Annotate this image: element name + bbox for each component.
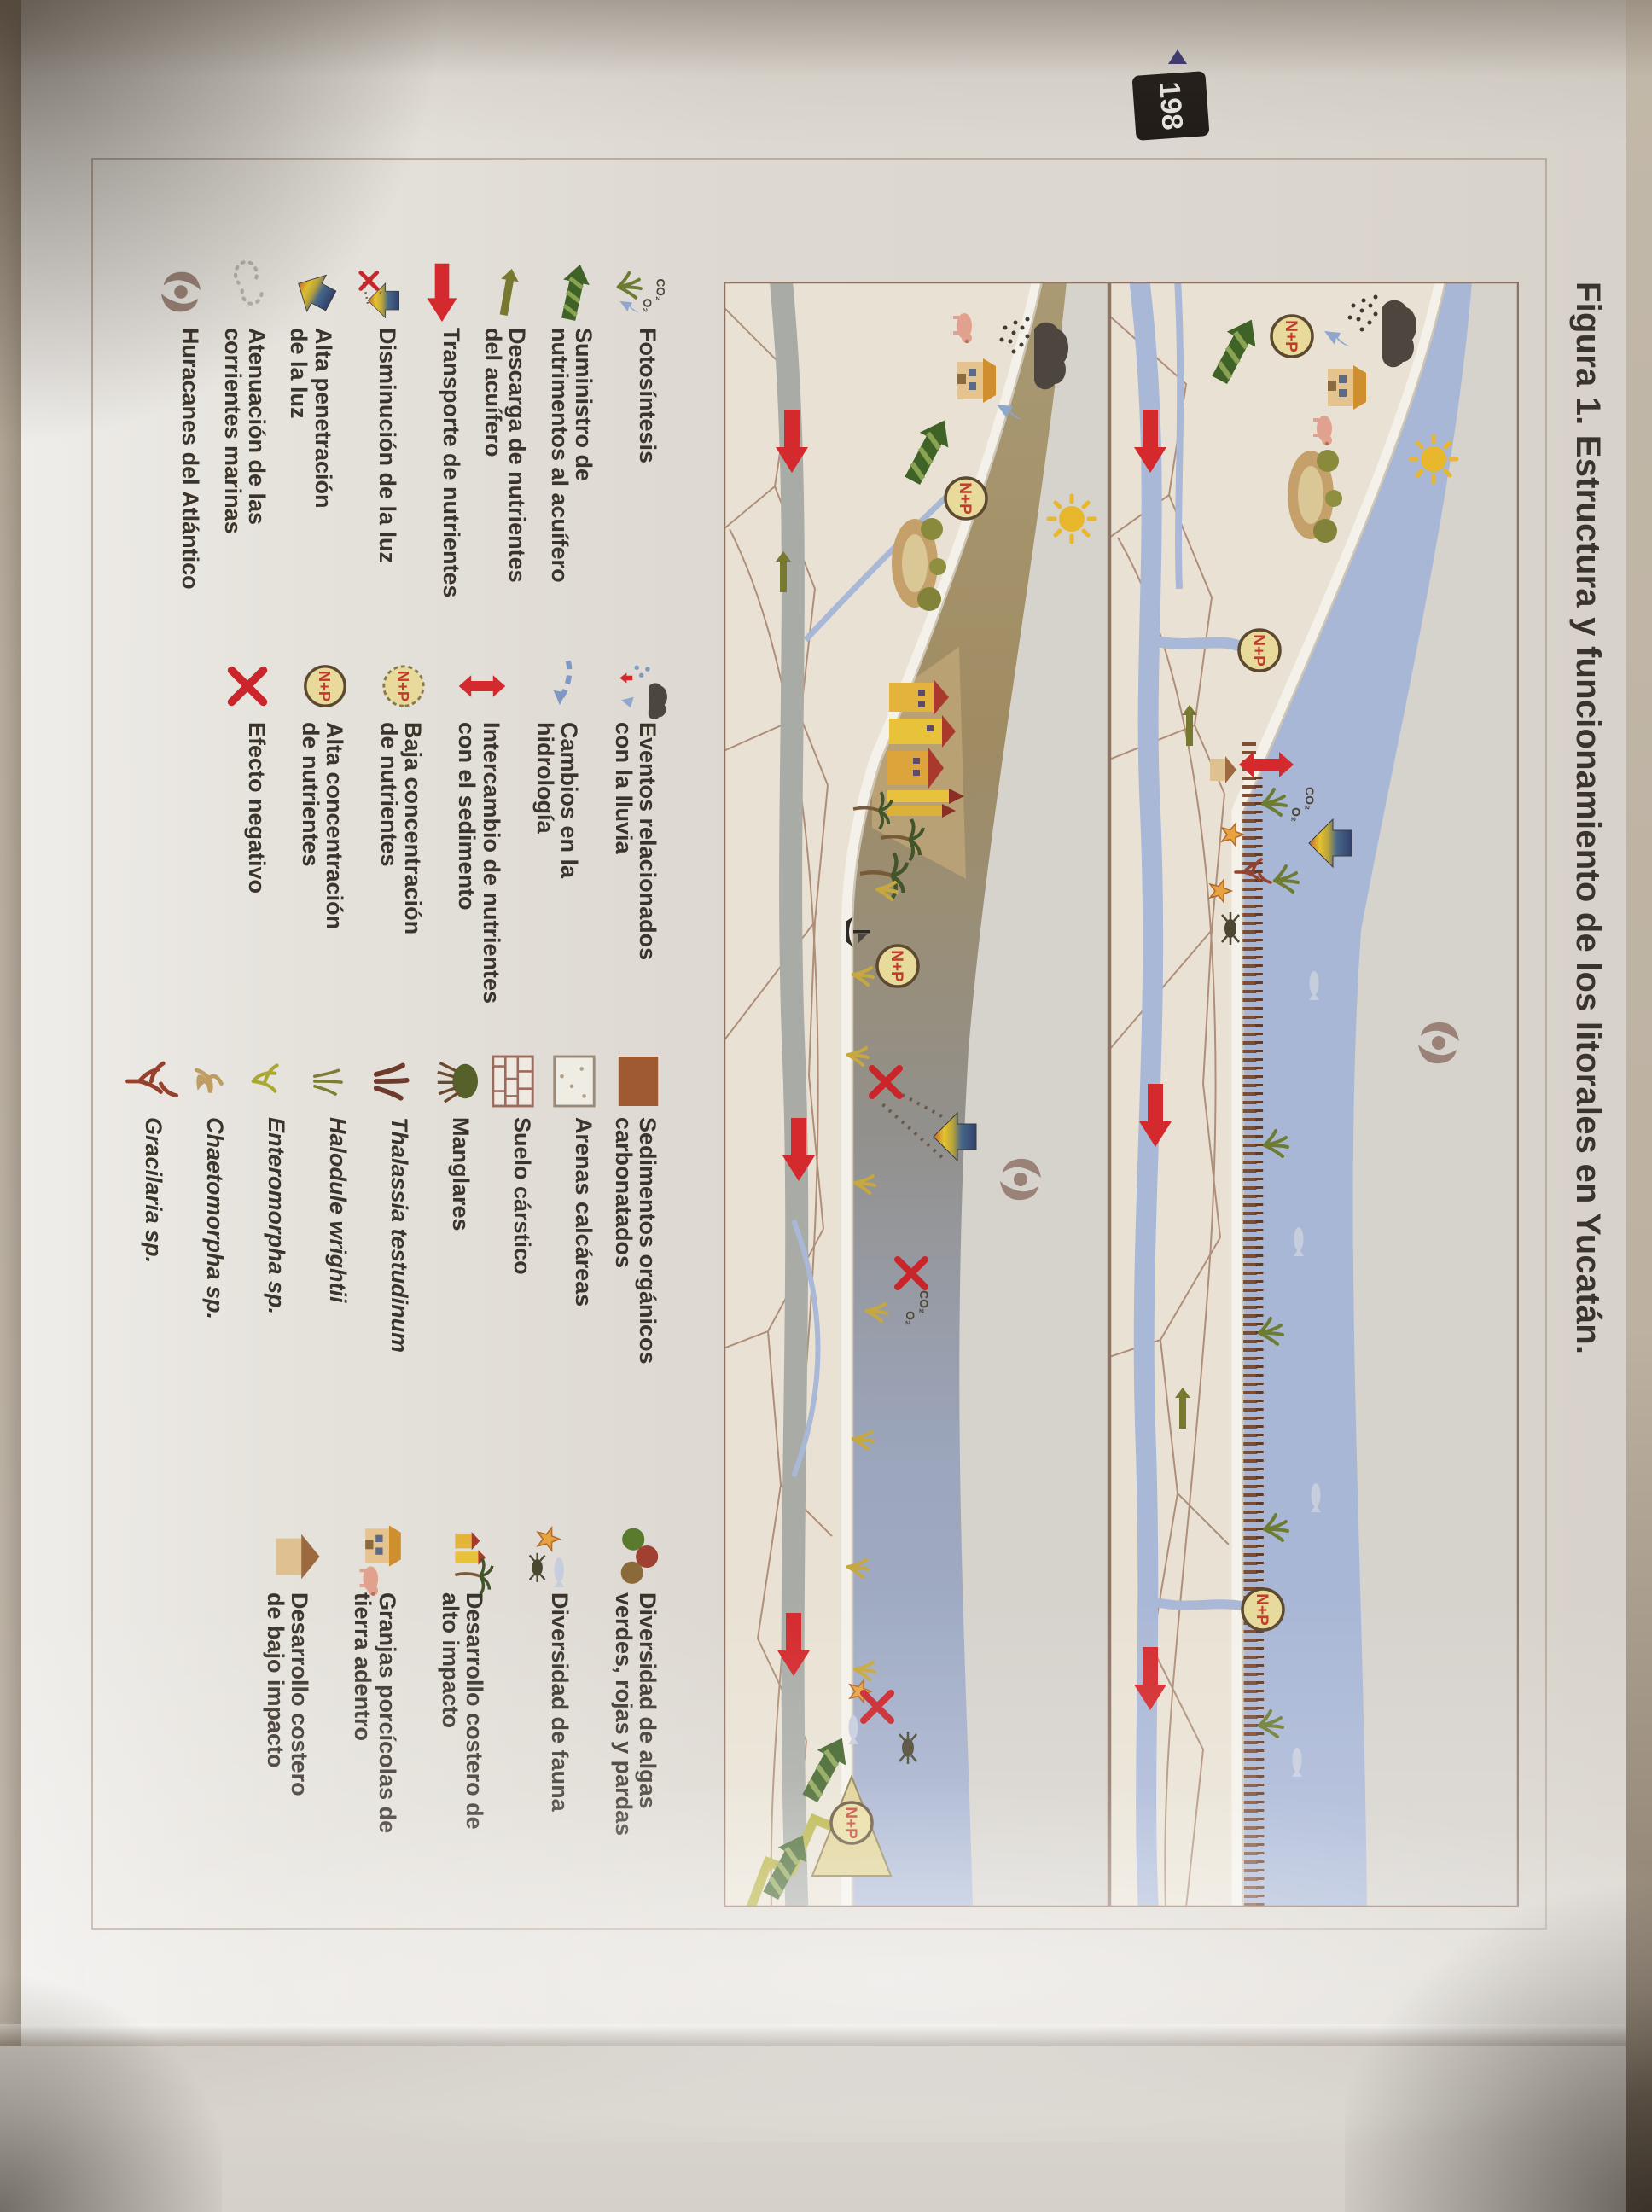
legend-item: Manglares [427, 1045, 476, 1429]
negative-effect-icon [223, 650, 272, 722]
book-page: Figura 1. Estructura y funcionamiento de… [21, 0, 1626, 2048]
legend-item: Halodule wrightii [304, 1045, 353, 1429]
light-decrease-icon [353, 256, 403, 328]
legend-item: Sedimentos orgánicos carbonatados [611, 1045, 663, 1429]
legend-item: Huracanes del Atlántico [156, 256, 206, 640]
figure-title: Figura 1. Estructura y funcionamiento de… [1568, 282, 1607, 1681]
hydrology-change-icon [535, 650, 585, 722]
cenote-ring-icon [1288, 450, 1342, 543]
np-badge [1271, 316, 1312, 357]
crab-icon [1222, 912, 1239, 945]
sun-icon [1411, 436, 1457, 482]
sun-icon [1049, 496, 1095, 542]
legend-item: Chaetomorpha sp. [181, 1045, 230, 1429]
legend-item: Baja concentración de nutrientes [376, 650, 428, 1009]
panel-litoral-impactado [724, 282, 1109, 1907]
thalassia-icon [365, 1045, 415, 1117]
photo-background-edge [1626, 0, 1652, 2212]
legend-item: Intercambio de nutrientes con el sedimen… [455, 650, 507, 1009]
gracilaria-icon [119, 1045, 169, 1117]
legend-item: Cambios en la hidrología [533, 650, 585, 1009]
low-nutrient-icon [379, 650, 428, 722]
aquifer-discharge-arrow-icon [483, 256, 532, 328]
legend-item: Alta concentración de nutrientes [299, 650, 351, 1009]
pig-farm-icon [353, 1521, 403, 1592]
legend-item: Eventos relacionados con la lluvia [611, 650, 663, 1009]
legend-item: Disminución de la luz [353, 256, 403, 640]
photosynthesis-icon [614, 256, 663, 328]
legend-item: Desarrollo costero de bajo impacto [263, 1521, 315, 1905]
high-nutrient-icon [300, 650, 350, 722]
legend-item: Granjas porcícolas de tierra adentro [351, 1521, 403, 1905]
np-badge [877, 946, 918, 987]
legend-item: Arenas calcáreas [550, 1045, 599, 1429]
page-tab-arrow-icon [1168, 49, 1187, 64]
legend-item: Diversidad de fauna [526, 1521, 575, 1905]
high-light-penetration-icon [289, 256, 339, 328]
legend-item: Efecto negativo [223, 650, 272, 1009]
current-attenuation-icon [223, 256, 272, 328]
legend-item: Fotosíntesis [614, 256, 663, 640]
photographed-book-page: N+P CO₂ O₂ [0, 0, 1652, 2212]
halodule-icon [304, 1045, 353, 1117]
legend-item: Suelo cárstico [488, 1045, 538, 1429]
legend-item: Descarga de nutrientes del acuífero [481, 256, 533, 640]
legend-item: Thalassia testudinum [365, 1045, 415, 1429]
figure-legend: Fotosíntesis Suministro de nutrimentos a… [134, 256, 663, 1929]
legend-item: Transporte de nutrientes [417, 256, 467, 640]
legend-item: Atenuación de las corrientes marinas [220, 256, 272, 640]
low-impact-development-icon [265, 1521, 315, 1592]
hurricane-icon [156, 256, 206, 328]
legend-column-3: Sedimentos orgánicos carbonatados Arenas… [108, 1045, 663, 1429]
high-impact-development-icon [440, 1521, 490, 1592]
panel2-diagram [724, 282, 1109, 1907]
chaetomorpha-icon [181, 1045, 230, 1117]
aquifer-supply-arrow-icon [550, 256, 599, 328]
legend-item: Alta penetración de la luz [287, 256, 339, 640]
calcareous-sand-swatch [550, 1045, 599, 1117]
next-page-strip: 1. 2. 3. 4. 21°0'N W Figura profundid bl… [0, 2046, 1652, 2212]
legend-item: Diversidad de algas verdes, rojas y pard… [611, 1521, 663, 1905]
np-badge [1239, 630, 1280, 671]
sediment-exchange-icon [457, 650, 507, 722]
cenote-ring-icon [892, 518, 946, 611]
algae-diversity-icon [614, 1521, 663, 1592]
legend-item: Gracilaria sp. [119, 1045, 169, 1429]
legend-column-1: Fotosíntesis Suministro de nutrimentos a… [142, 256, 663, 640]
karst-soil-swatch [488, 1045, 538, 1117]
rain-events-icon [614, 650, 663, 722]
mangrove-icon [427, 1045, 476, 1117]
np-badge [1242, 1589, 1283, 1630]
legend-item: Suministro de nutrimentos al acuífero [547, 256, 599, 640]
farm-icon [1328, 365, 1366, 410]
page-number-tab: 198 [1131, 71, 1209, 141]
organic-sediment-swatch [614, 1045, 663, 1117]
legend-item: Desarrollo costero de alto impacto [439, 1521, 491, 1905]
enteromorpha-icon [242, 1045, 292, 1117]
fauna-diversity-icon [526, 1521, 575, 1592]
farm-icon [957, 358, 996, 403]
panel-litoral-conservado [1109, 282, 1519, 1907]
np-badge [945, 478, 986, 519]
legend-item: Enteromorpha sp. [242, 1045, 292, 1429]
nutrient-transport-arrow-icon [417, 256, 467, 328]
panel1-diagram [1109, 282, 1519, 1907]
legend-column-2: Eventos relacionados con la lluvia Cambi… [196, 650, 663, 1009]
legend-column-4: Diversidad de algas verdes, rojas y pard… [227, 1521, 663, 1905]
